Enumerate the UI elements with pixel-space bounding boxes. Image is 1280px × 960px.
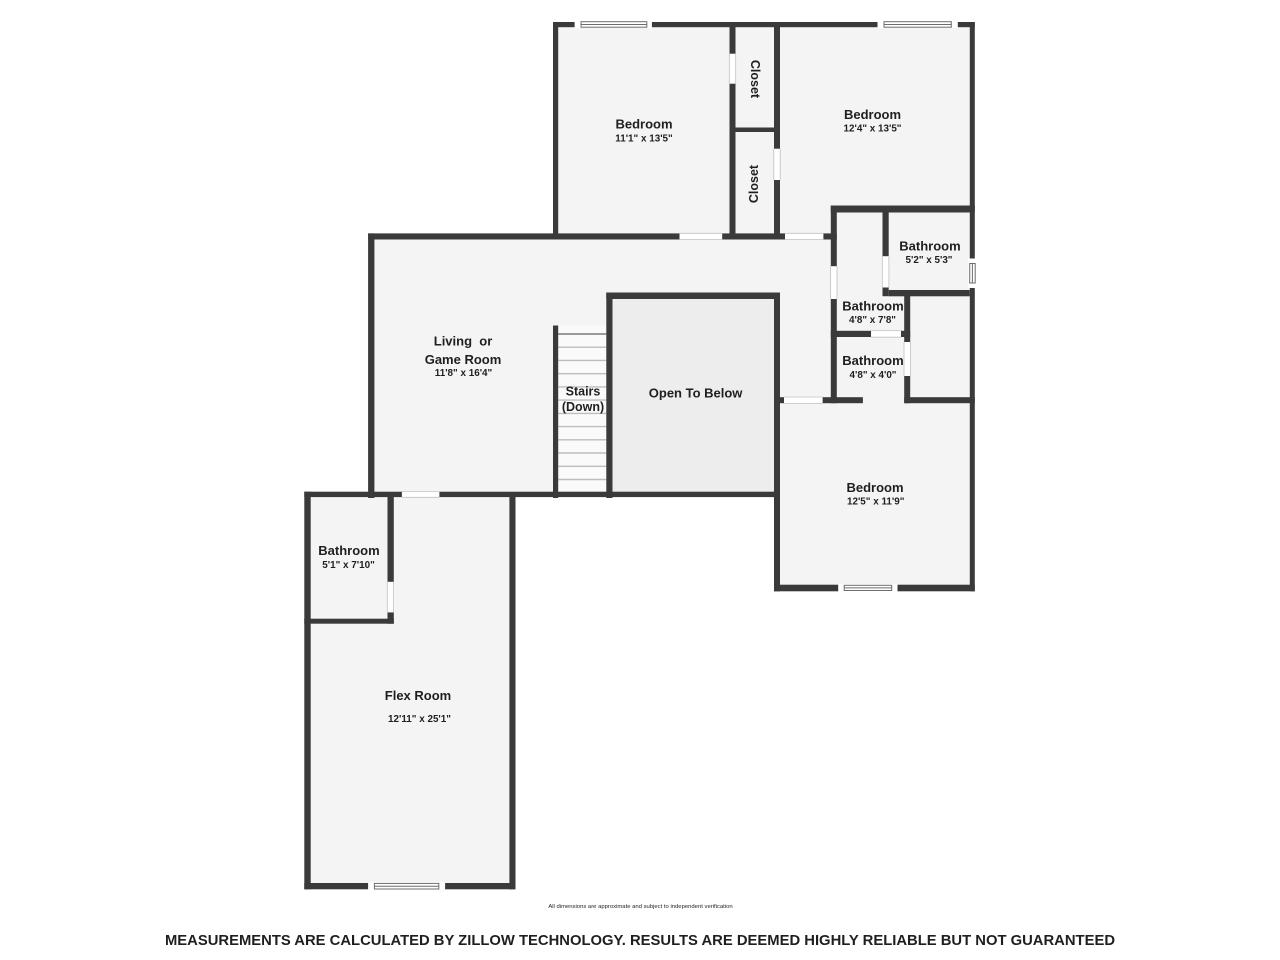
svg-text:(Down): (Down) bbox=[562, 400, 604, 414]
svg-text:5'1" x 7'10": 5'1" x 7'10" bbox=[322, 560, 375, 571]
svg-text:Stairs: Stairs bbox=[566, 384, 601, 398]
svg-text:Bedroom: Bedroom bbox=[615, 116, 672, 131]
svg-text:5'2" x 5'3": 5'2" x 5'3" bbox=[905, 255, 952, 266]
svg-text:4'8" x 4'0": 4'8" x 4'0" bbox=[849, 370, 896, 381]
svg-text:Open To Below: Open To Below bbox=[649, 386, 744, 401]
svg-text:All dimensions are approximate: All dimensions are approximate and subje… bbox=[548, 904, 732, 910]
svg-text:Bathroom: Bathroom bbox=[899, 238, 960, 253]
svg-text:MEASUREMENTS ARE CALCULATED BY: MEASUREMENTS ARE CALCULATED BY ZILLOW TE… bbox=[165, 933, 1115, 949]
svg-text:12'11" x 25'1": 12'11" x 25'1" bbox=[388, 714, 451, 725]
svg-text:Bathroom: Bathroom bbox=[318, 543, 379, 558]
svg-text:4'8" x 7'8": 4'8" x 7'8" bbox=[849, 315, 896, 326]
svg-text:Closet: Closet bbox=[747, 164, 761, 203]
svg-text:12'5" x 11'9": 12'5" x 11'9" bbox=[847, 497, 905, 508]
svg-text:11'8" x 16'4": 11'8" x 16'4" bbox=[435, 368, 493, 379]
svg-text:Living or: Living or bbox=[434, 333, 493, 348]
svg-text:Bedroom: Bedroom bbox=[844, 107, 901, 122]
svg-text:Bathroom: Bathroom bbox=[842, 353, 903, 368]
svg-text:Game Room: Game Room bbox=[425, 352, 502, 367]
svg-text:Closet: Closet bbox=[748, 60, 762, 99]
svg-text:12'4" x 13'5": 12'4" x 13'5" bbox=[844, 124, 902, 135]
svg-text:Flex Room: Flex Room bbox=[385, 688, 451, 703]
svg-text:Bathroom: Bathroom bbox=[842, 298, 903, 313]
svg-text:Bedroom: Bedroom bbox=[846, 480, 903, 495]
svg-text:11'1" x 13'5": 11'1" x 13'5" bbox=[615, 134, 673, 145]
